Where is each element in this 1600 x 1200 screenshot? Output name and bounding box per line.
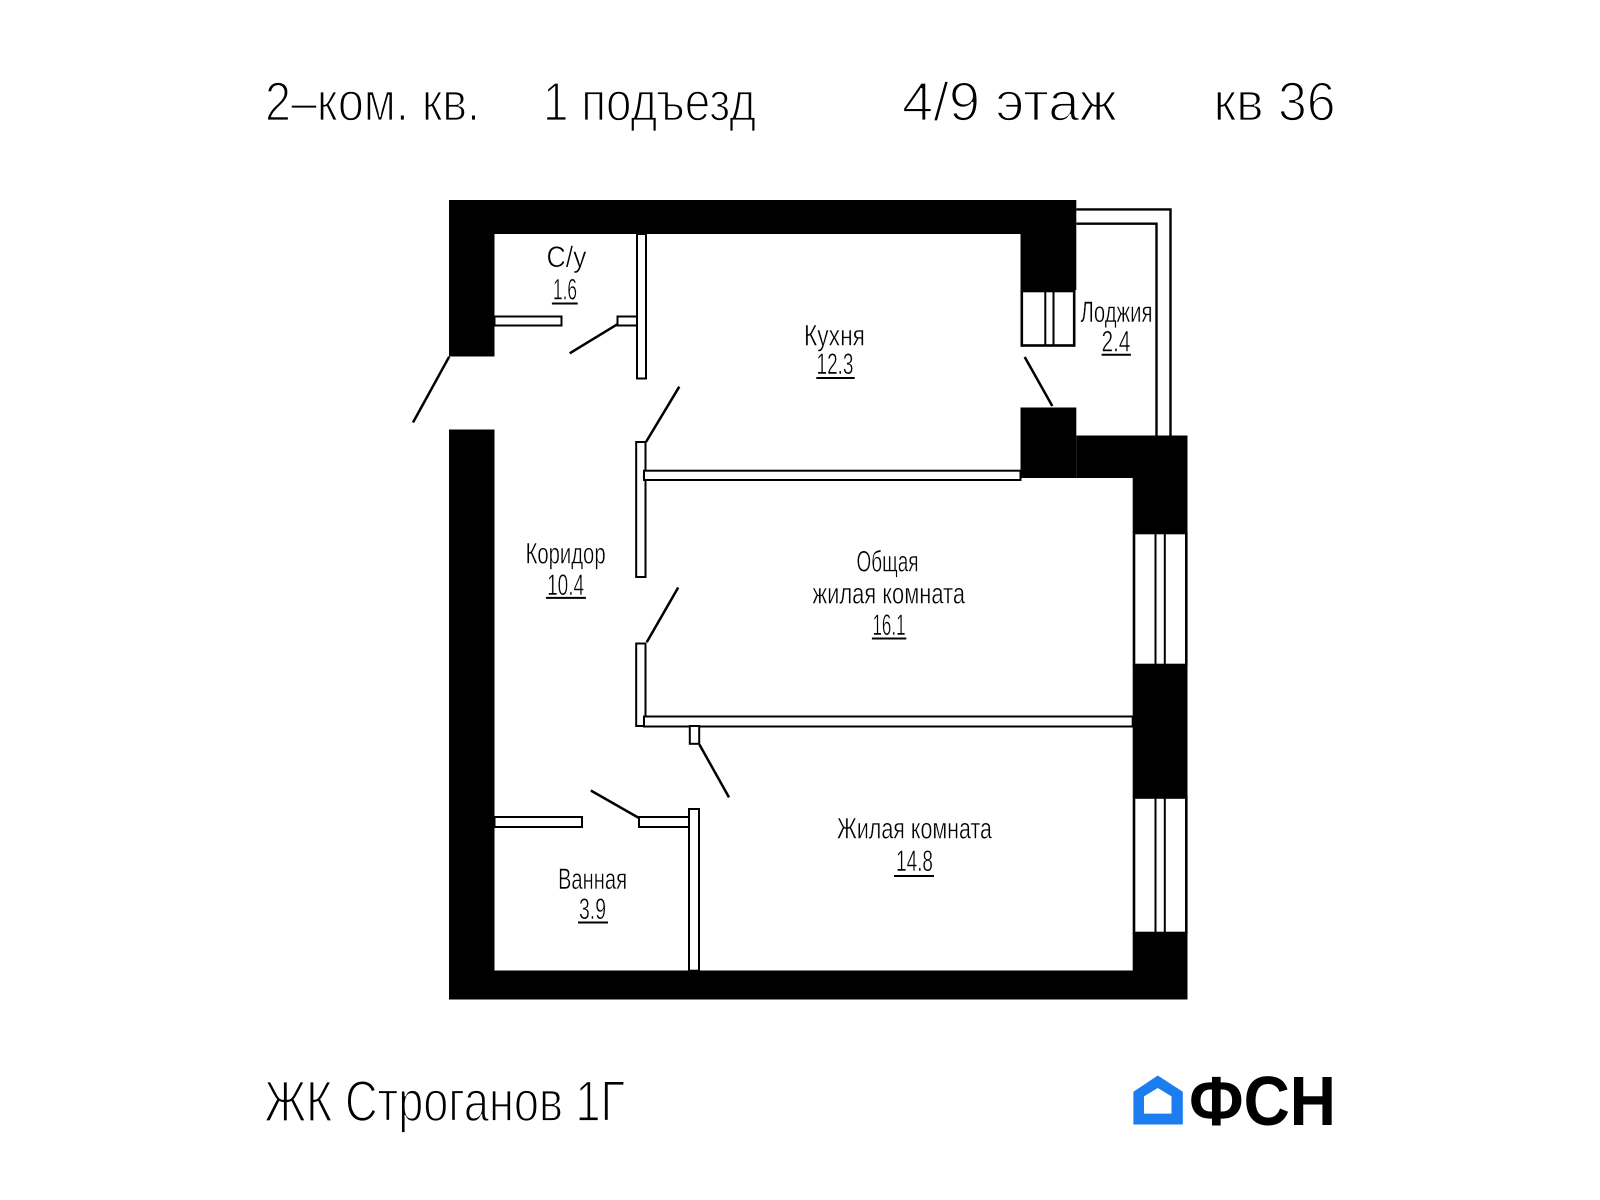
svg-text:3.9: 3.9 — [579, 893, 606, 926]
svg-text:1 подъезд: 1 подъезд — [543, 71, 756, 133]
svg-text:Общая: Общая — [857, 545, 919, 578]
svg-text:16.1: 16.1 — [873, 609, 906, 642]
svg-text:жилая комната: жилая комната — [813, 578, 966, 611]
svg-text:ФСН: ФСН — [1189, 1062, 1336, 1140]
svg-text:14.8: 14.8 — [896, 845, 933, 878]
svg-text:кв 36: кв 36 — [1214, 71, 1336, 133]
svg-text:Коридор: Коридор — [526, 538, 606, 571]
svg-text:2–ком. кв.: 2–ком. кв. — [265, 71, 480, 133]
svg-text:1.6: 1.6 — [553, 274, 577, 307]
svg-text:2.4: 2.4 — [1102, 326, 1131, 359]
svg-text:ЖК Строганов 1Г: ЖК Строганов 1Г — [265, 1070, 626, 1134]
svg-text:Ванная: Ванная — [558, 863, 627, 896]
svg-text:Лоджия: Лоджия — [1081, 296, 1153, 329]
svg-text:С/у: С/у — [547, 241, 587, 274]
svg-text:12.3: 12.3 — [817, 348, 854, 381]
svg-text:4/9 этаж: 4/9 этаж — [902, 71, 1117, 133]
svg-text:Жилая комната: Жилая комната — [837, 813, 992, 846]
